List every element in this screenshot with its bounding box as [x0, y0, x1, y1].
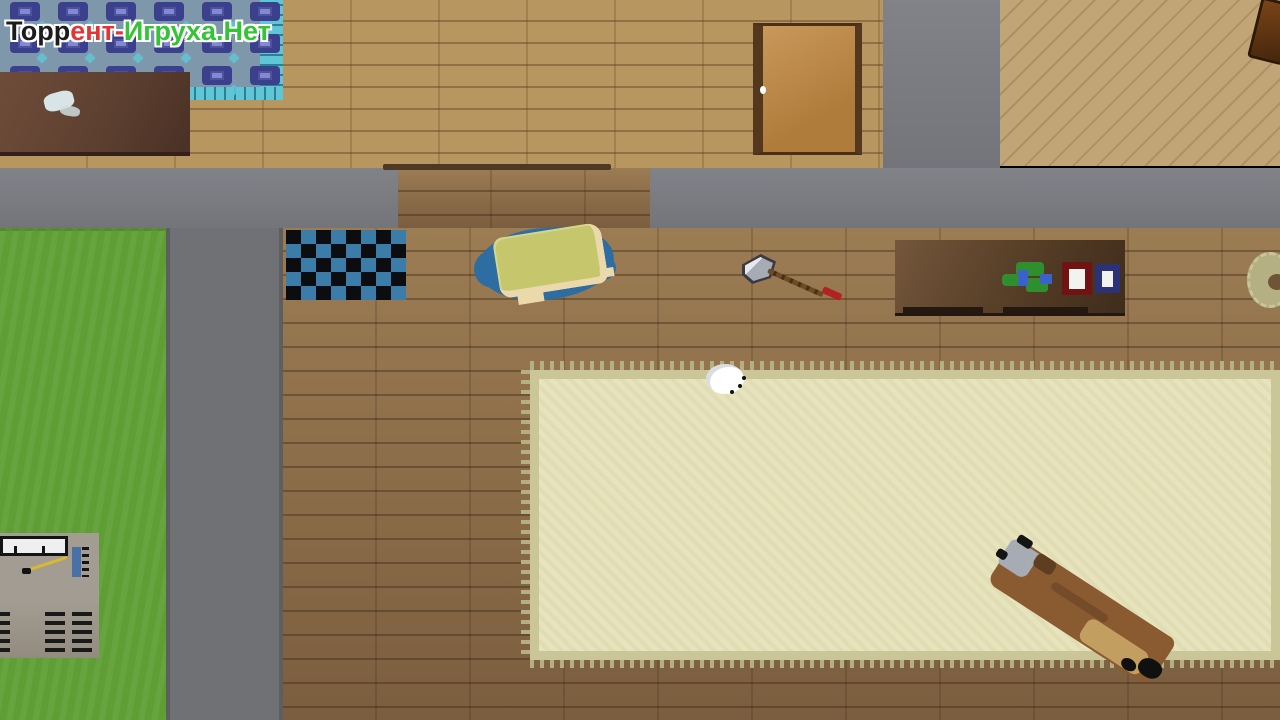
carpet-motif — [250, 66, 280, 85]
checker-cell — [346, 286, 361, 300]
checker-cell — [286, 230, 301, 244]
machine-pipe-marks — [82, 547, 89, 577]
threshold — [383, 164, 611, 170]
checker-cell — [376, 258, 391, 272]
bed-frame-stub — [599, 267, 614, 278]
checker-cell — [346, 272, 361, 286]
hand-axe[interactable] — [742, 250, 840, 306]
stone-path — [166, 228, 283, 720]
checker-cell — [331, 286, 346, 300]
carpet-diamond — [180, 52, 191, 63]
axe-grip — [821, 286, 842, 301]
checker-cell — [361, 272, 376, 286]
machine-lamp-bar — [0, 536, 68, 556]
checker-cell — [331, 272, 346, 286]
machine-vent — [45, 612, 65, 656]
checker-cell — [286, 286, 301, 300]
checker-cell — [316, 230, 331, 244]
toy-part — [1018, 270, 1028, 286]
checker-cell — [286, 244, 301, 258]
toy-part — [1040, 274, 1052, 284]
machine-vent — [72, 612, 92, 656]
wall-band-left — [0, 168, 398, 228]
checker-cell — [361, 258, 376, 272]
checker-cell — [376, 244, 391, 258]
checker-cell — [346, 244, 361, 258]
desk-leg — [1003, 307, 1088, 314]
bed-mattress — [492, 222, 609, 299]
checker-cell — [286, 258, 301, 272]
checker-cell — [316, 286, 331, 300]
checker-cell — [316, 272, 331, 286]
checker-cell — [301, 244, 316, 258]
checker-cell — [376, 272, 391, 286]
carpet-fringe-bottom — [530, 659, 1280, 668]
carpet-motif — [202, 66, 232, 85]
checker-cell — [361, 230, 376, 244]
watermark: Торрент-Игруха.Нет — [6, 16, 271, 47]
machine-blue-pipe — [72, 547, 81, 577]
checker-cell — [331, 244, 346, 258]
red-book[interactable] — [1062, 262, 1092, 295]
checker-cell — [376, 230, 391, 244]
navy-book[interactable] — [1095, 264, 1120, 293]
watermark-part-1: Торр — [6, 16, 70, 46]
wall-vertical — [883, 0, 1000, 168]
checkered-rug — [286, 230, 406, 300]
checker-cell — [301, 286, 316, 300]
carpet-diamond — [36, 52, 47, 63]
carpet-diamond — [84, 52, 95, 63]
checker-cell — [346, 258, 361, 272]
checker-cell — [331, 258, 346, 272]
large-beige-carpet — [530, 370, 1280, 660]
checker-cell — [391, 244, 406, 258]
carpet-fringe-top — [530, 361, 1280, 370]
carpet-fringe-left — [521, 370, 530, 660]
checker-cell — [391, 258, 406, 272]
wall-band-right — [650, 168, 1280, 228]
diagonal-room-floor — [1000, 0, 1280, 166]
machine[interactable] — [0, 530, 100, 660]
machine-plug — [22, 568, 31, 574]
writing-desk[interactable] — [895, 240, 1125, 316]
white-egg[interactable] — [706, 364, 744, 394]
checker-cell — [301, 258, 316, 272]
machine-tick — [14, 546, 17, 554]
checker-cell — [361, 244, 376, 258]
carpet-diamond — [228, 52, 239, 63]
carpet-diamond — [132, 52, 143, 63]
checker-cell — [376, 286, 391, 300]
watermark-part-2: ент- — [70, 16, 124, 46]
checker-cell — [316, 258, 331, 272]
checker-cell — [301, 230, 316, 244]
desk-leg — [903, 307, 983, 314]
game-viewport: Торрент-Игруха.Нет — [0, 0, 1280, 720]
door[interactable] — [753, 23, 862, 155]
machine-vent — [0, 612, 10, 656]
bed[interactable] — [474, 222, 620, 308]
checker-cell — [286, 272, 301, 286]
checker-cell — [391, 272, 406, 286]
wooden-table[interactable] — [0, 72, 190, 156]
checker-cell — [301, 272, 316, 286]
checker-cell — [361, 286, 376, 300]
checker-cell — [316, 244, 331, 258]
checker-cell — [331, 230, 346, 244]
doorway-gap-floor — [398, 168, 650, 228]
axe-handle — [767, 268, 824, 297]
checker-cell — [346, 230, 361, 244]
checker-cell — [391, 286, 406, 300]
checker-cell — [391, 230, 406, 244]
toy[interactable] — [1000, 260, 1062, 298]
machine-tick — [42, 546, 45, 554]
watermark-part-3: Игруха.Нет — [124, 16, 271, 46]
door-knob — [760, 86, 766, 94]
table-item-white-bit — [59, 104, 80, 117]
